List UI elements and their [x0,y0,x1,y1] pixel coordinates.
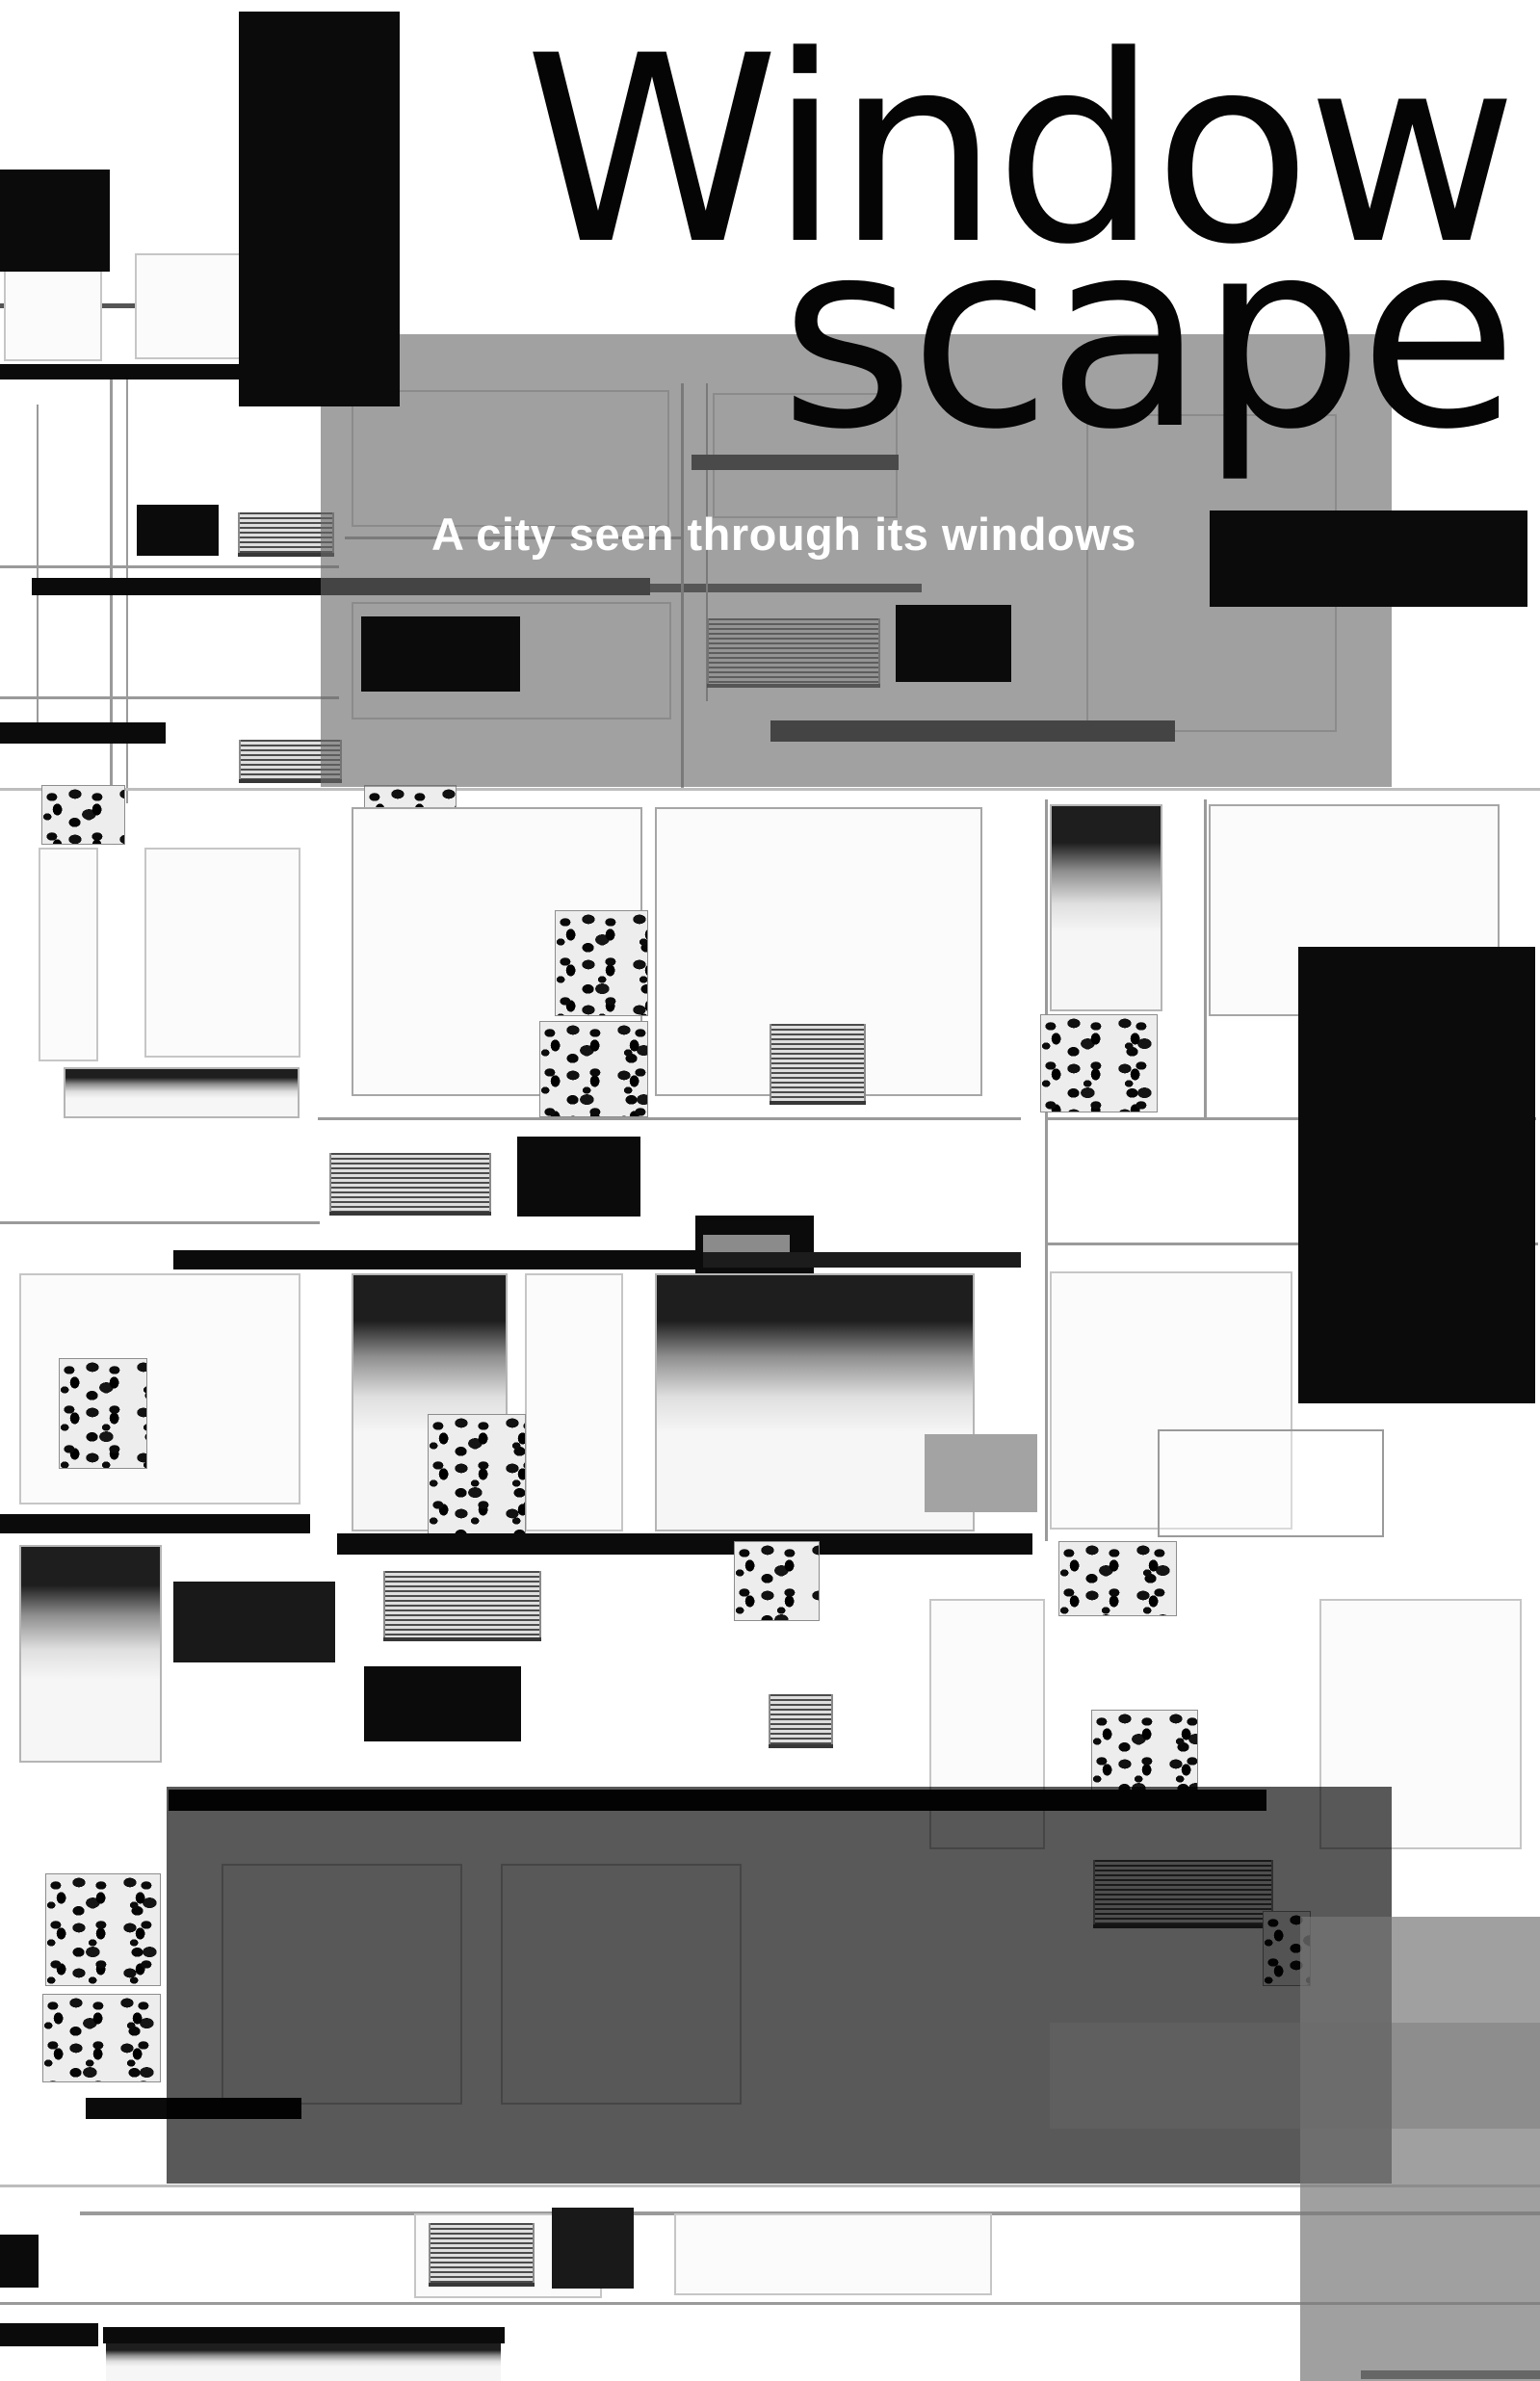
black-block-top-left [0,170,110,272]
black-block-center-left [361,616,520,692]
window-blinds [769,1694,833,1744]
black-window-pane [173,1582,335,1662]
window-blinds [429,2223,535,2283]
black-window-pane [0,2235,39,2288]
shaded-pane [106,2343,501,2381]
gray-overlay-bottom-right [1300,1917,1540,2381]
gray-band-bottom [1050,2023,1540,2129]
facade-band [337,1533,1032,1555]
black-block-right-large [1298,947,1535,1403]
frame-line [37,405,39,742]
shaded-pane [64,1067,300,1118]
facade-band [0,722,166,744]
foliage-pane [42,1994,161,2082]
window-blinds [770,1024,866,1101]
black-window-pane [364,1666,521,1741]
window-pane [674,2213,992,2295]
facade-band [703,1252,1021,1268]
black-window-pane [137,505,219,556]
vertical-black-bar [239,12,400,406]
facade-band [173,1250,700,1269]
black-block-center [896,605,1011,682]
facade-band [0,1514,310,1533]
foliage-pane [59,1358,147,1469]
frame-line [1204,799,1207,1117]
gray-block-small [925,1434,1037,1512]
outline-panel [1158,1429,1384,1537]
frame-line [0,788,1540,791]
foliage-pane [539,1021,648,1117]
frame-line [318,1117,1021,1120]
poster-subtitle: A city seen through its windows [431,508,1136,561]
black-window-pane [517,1137,640,1217]
shaded-pane [1050,804,1162,1011]
poster-title-line2: scape [780,187,1513,486]
foliage-pane [1040,1014,1158,1112]
window-blinds [329,1153,491,1212]
window-blinds [383,1571,541,1637]
black-window-pane [552,2208,634,2289]
facade-band [0,2323,98,2346]
frame-line [0,1221,320,1224]
foliage-pane [428,1414,526,1539]
window-pane [525,1273,623,1531]
shaded-pane [19,1545,162,1763]
black-block-right-of-subtitle [1210,510,1527,607]
frame-line [0,696,339,699]
foliage-pane [734,1541,820,1621]
foliage-pane [41,785,125,845]
poster-canvas: Window scape A city seen through its win… [0,0,1540,2381]
frame-line [0,565,339,568]
facade-band [103,2327,505,2343]
frame-line [1045,799,1048,1541]
foliage-pane [555,910,648,1016]
window-blinds [238,512,334,553]
foliage-pane [45,1873,161,1986]
window-pane [144,848,300,1058]
window-pane [39,848,98,1061]
foliage-pane [1058,1541,1177,1616]
